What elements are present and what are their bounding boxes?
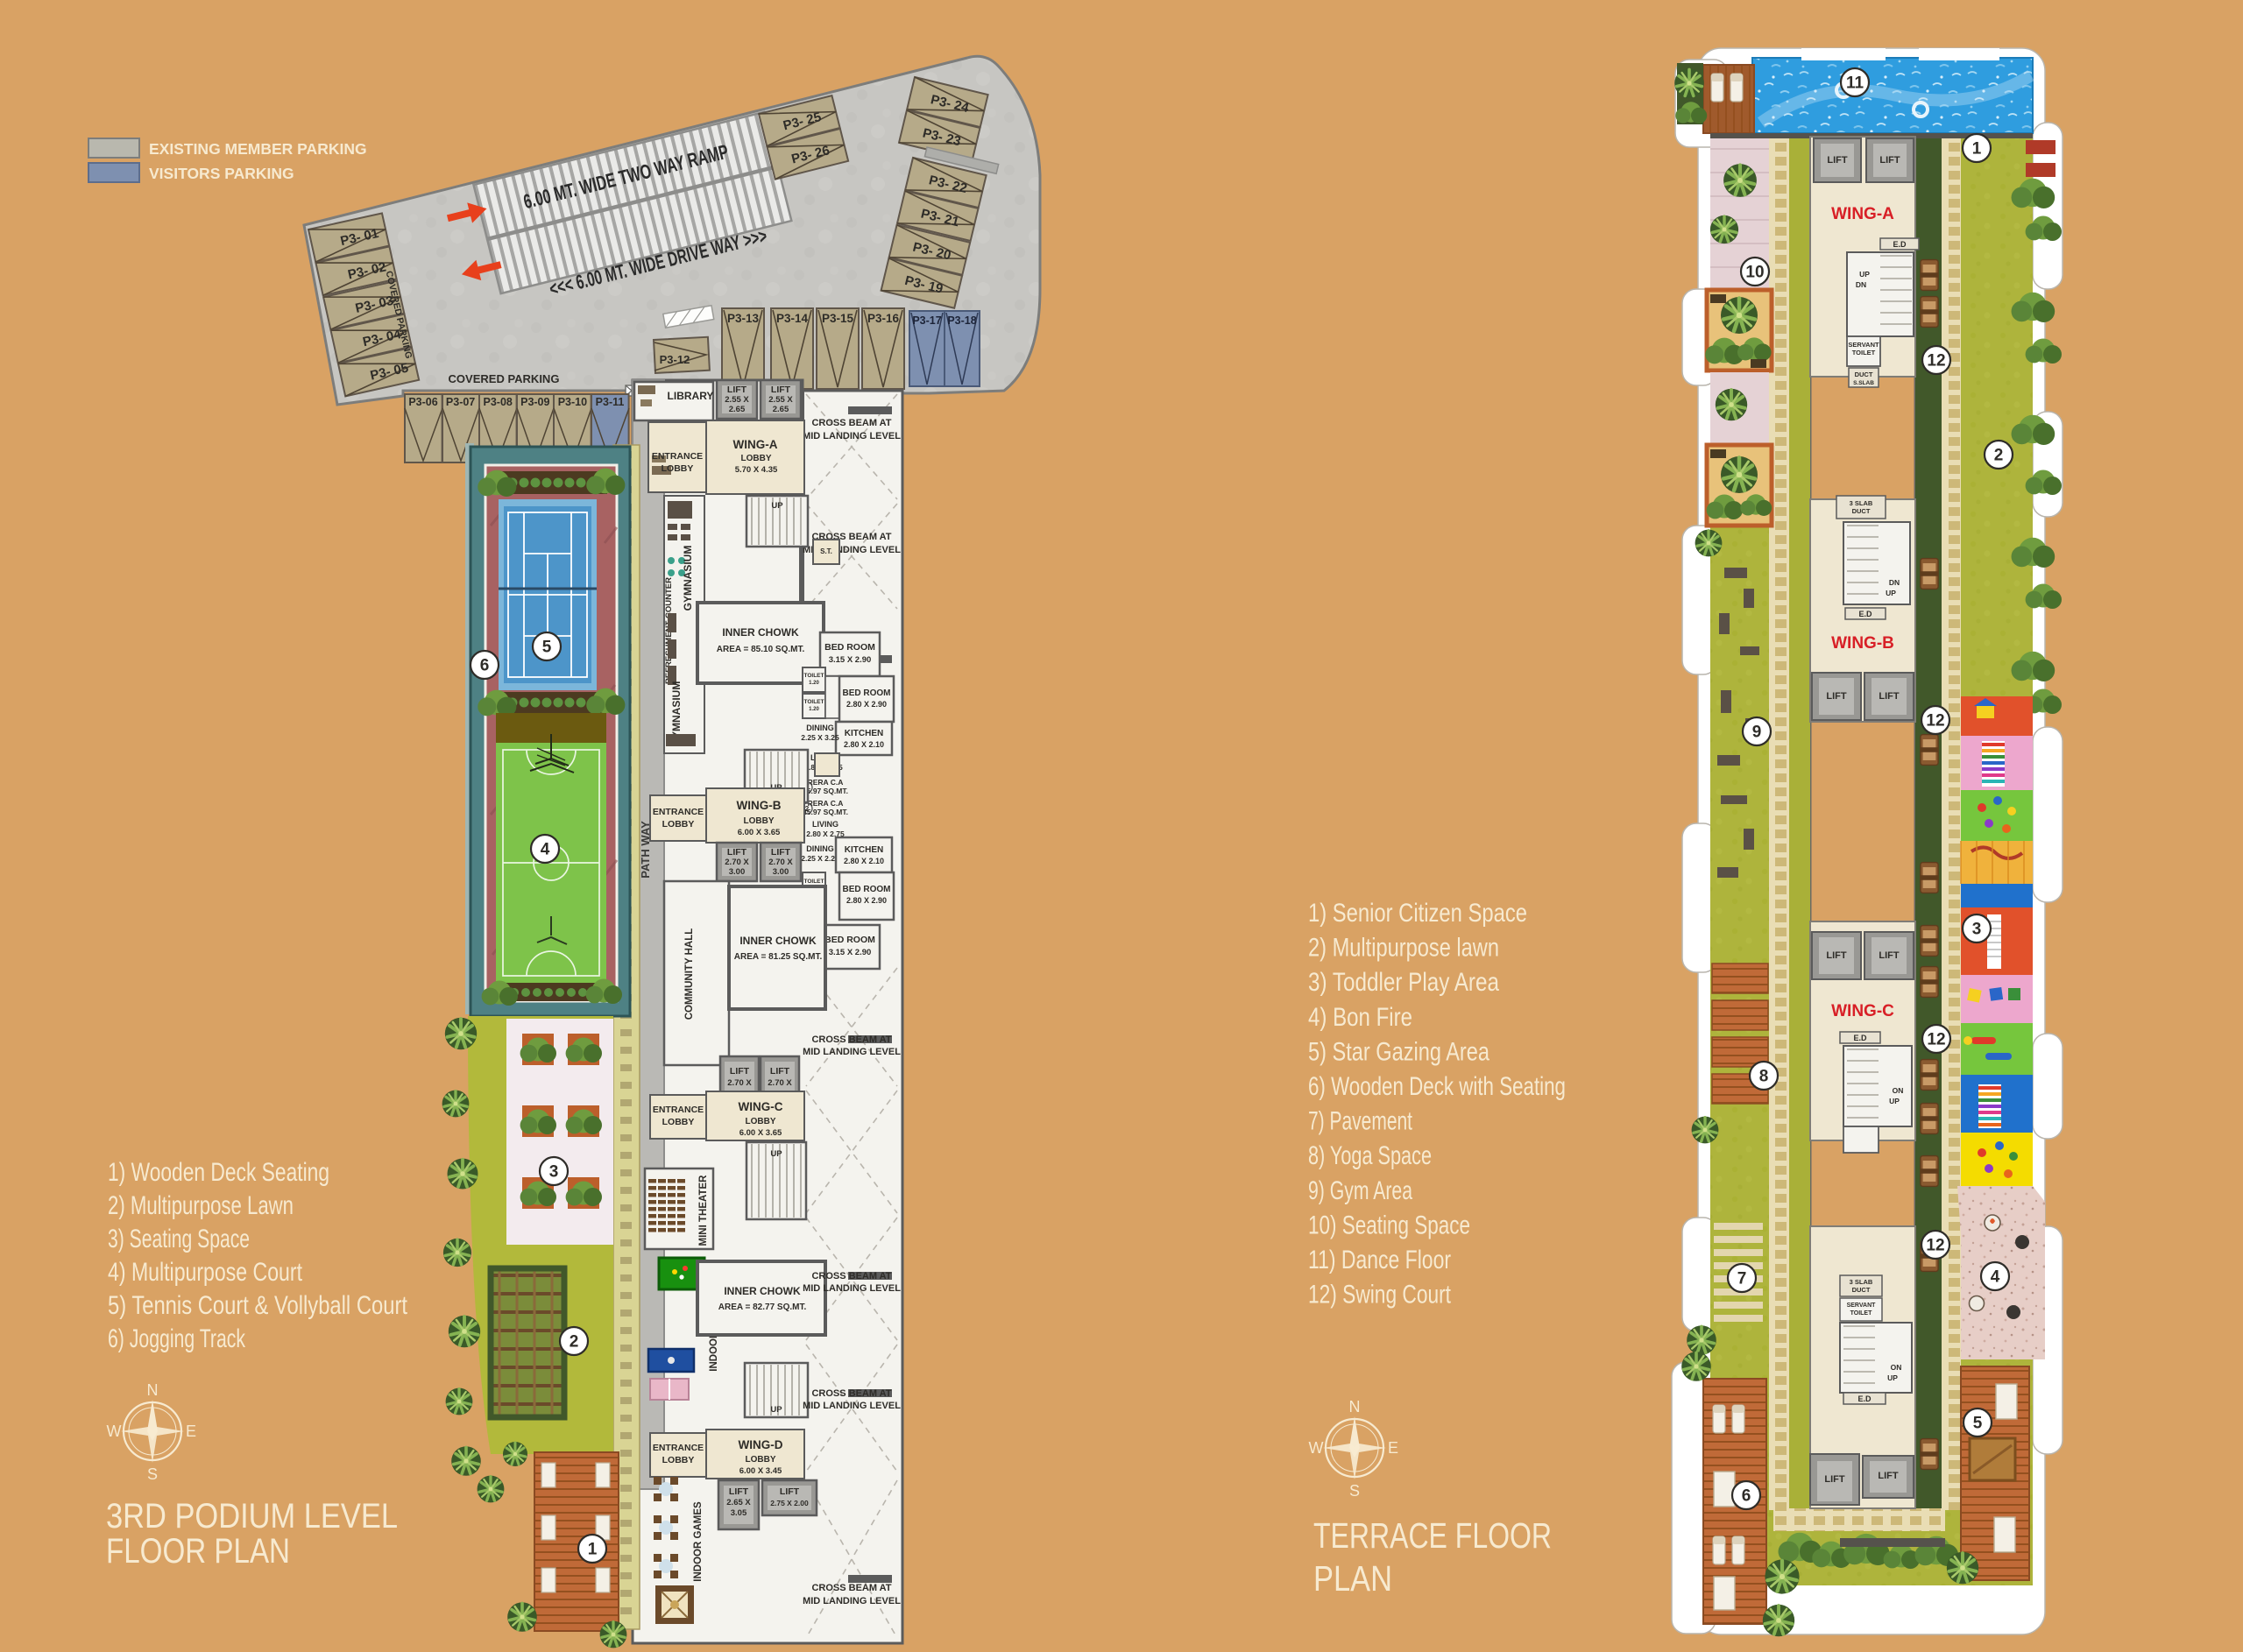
svg-text:DN: DN	[1856, 280, 1866, 289]
svg-text:2.55 X: 2.55 X	[725, 395, 749, 405]
svg-text:LIFT: LIFT	[1826, 950, 1846, 961]
svg-text:P3-08: P3-08	[484, 396, 513, 408]
svg-text:3 SLAB: 3 SLAB	[1850, 1278, 1873, 1286]
svg-text:2.55 X: 2.55 X	[768, 395, 793, 405]
svg-text:LOBBY: LOBBY	[662, 819, 695, 830]
svg-text:S: S	[1349, 1482, 1360, 1500]
svg-text:2.80 X 2.90: 2.80 X 2.90	[846, 896, 887, 905]
svg-text:E.D: E.D	[1857, 1394, 1872, 1403]
svg-text:6.00 X 3.65: 6.00 X 3.65	[738, 828, 781, 837]
svg-text:3) Toddler Play Area: 3) Toddler Play Area	[1308, 968, 1499, 997]
svg-text:BED ROOM: BED ROOM	[824, 642, 875, 653]
svg-text:LIBRARY: LIBRARY	[668, 390, 714, 402]
svg-text:LOBBY: LOBBY	[662, 1117, 695, 1127]
svg-text:1: 1	[1972, 140, 1982, 159]
svg-text:45.97 SQ.MT.: 45.97 SQ.MT.	[803, 808, 848, 816]
svg-text:EXISTING MEMBER PARKING: EXISTING MEMBER PARKING	[149, 140, 367, 158]
svg-text:3.00: 3.00	[729, 867, 746, 877]
svg-text:LIFT: LIFT	[727, 385, 747, 395]
svg-text:CROSS BEAM AT: CROSS BEAM AT	[811, 1388, 891, 1399]
svg-text:4) Multipurpose Court: 4) Multipurpose Court	[108, 1258, 303, 1287]
svg-text:MID LANDING LEVEL: MID LANDING LEVEL	[803, 431, 901, 441]
svg-text:MID LANDING LEVEL: MID LANDING LEVEL	[803, 1401, 901, 1411]
svg-text:2) Multipurpose lawn: 2) Multipurpose lawn	[1308, 934, 1499, 963]
svg-text:45.97 SQ.MT.: 45.97 SQ.MT.	[803, 787, 848, 795]
svg-text:DUCT: DUCT	[1852, 1286, 1871, 1294]
svg-text:LIFT: LIFT	[1878, 1471, 1898, 1481]
svg-text:N: N	[147, 1381, 159, 1399]
svg-text:4: 4	[1991, 1268, 2000, 1287]
svg-text:CROSS BEAM AT: CROSS BEAM AT	[811, 418, 891, 428]
svg-text:LIFT: LIFT	[1879, 155, 1900, 166]
svg-text:P3-12: P3-12	[660, 353, 690, 366]
svg-text:5: 5	[542, 639, 552, 657]
svg-text:6: 6	[1742, 1487, 1751, 1506]
svg-text:INNER CHOWK: INNER CHOWK	[724, 1285, 801, 1297]
svg-text:UP: UP	[770, 1405, 782, 1415]
svg-text:2) Multipurpose Lawn: 2) Multipurpose Lawn	[108, 1191, 294, 1220]
svg-text:10: 10	[1745, 264, 1764, 282]
svg-text:LIFT: LIFT	[771, 385, 791, 395]
svg-text:INNER CHOWK: INNER CHOWK	[722, 626, 799, 639]
svg-text:LOBBY: LOBBY	[741, 454, 772, 463]
svg-text:MID LANDING LEVEL: MID LANDING LEVEL	[803, 1596, 901, 1606]
svg-text:P3-09: P3-09	[520, 396, 549, 408]
svg-text:AREA = 82.77 SQ.MT.: AREA = 82.77 SQ.MT.	[718, 1303, 807, 1312]
svg-text:AREA = 85.10 SQ.MT.: AREA = 85.10 SQ.MT.	[717, 645, 805, 654]
svg-text:3.15 X 2.90: 3.15 X 2.90	[829, 948, 872, 957]
svg-text:2.65 X: 2.65 X	[726, 1498, 751, 1507]
svg-text:WING-B: WING-B	[737, 799, 782, 812]
svg-text:TOILET: TOILET	[804, 699, 824, 705]
svg-text:5.70 X 4.35: 5.70 X 4.35	[735, 465, 778, 475]
svg-text:E: E	[186, 1423, 196, 1440]
svg-text:LIFT: LIFT	[730, 1066, 750, 1077]
svg-text:P3-17: P3-17	[912, 314, 941, 327]
svg-text:S.T.: S.T.	[820, 547, 832, 555]
svg-text:6.00 X 3.45: 6.00 X 3.45	[739, 1466, 782, 1476]
svg-text:9: 9	[1752, 724, 1762, 742]
svg-text:1.20: 1.20	[809, 681, 819, 686]
svg-text:1) Wooden Deck Seating: 1) Wooden Deck Seating	[108, 1158, 329, 1187]
svg-text:3.00: 3.00	[773, 867, 789, 877]
svg-text:LIFT: LIFT	[780, 1486, 800, 1497]
svg-text:LOBBY: LOBBY	[744, 816, 775, 826]
svg-text:MID LANDING LEVEL: MID LANDING LEVEL	[803, 1283, 901, 1294]
svg-text:2: 2	[1994, 447, 2004, 465]
svg-text:E: E	[1388, 1439, 1398, 1457]
svg-text:6) Jogging Track: 6) Jogging Track	[108, 1324, 246, 1353]
svg-text:12) Swing Court: 12) Swing Court	[1308, 1281, 1451, 1310]
svg-text:TOILET: TOILET	[1852, 349, 1876, 357]
svg-text:W: W	[1309, 1439, 1324, 1457]
svg-text:2.80 X 2.10: 2.80 X 2.10	[844, 857, 884, 865]
svg-text:2.70 X: 2.70 X	[727, 1078, 752, 1088]
svg-text:P3-18: P3-18	[947, 314, 976, 327]
svg-text:CROSS BEAM AT: CROSS BEAM AT	[811, 1583, 891, 1593]
svg-text:KITCHEN: KITCHEN	[845, 729, 883, 738]
svg-text:KITCHEN: KITCHEN	[845, 845, 883, 855]
svg-text:W: W	[107, 1423, 122, 1440]
svg-text:P3-07: P3-07	[446, 396, 475, 408]
svg-text:GYMNASIUM: GYMNASIUM	[682, 546, 694, 611]
svg-text:S.SLAB: S.SLAB	[1853, 380, 1874, 386]
svg-text:COVERED PARKING: COVERED PARKING	[449, 372, 560, 385]
svg-text:1.20: 1.20	[809, 707, 819, 712]
svg-text:2.25 X 3.25: 2.25 X 3.25	[801, 733, 839, 742]
svg-text:1: 1	[588, 1541, 598, 1559]
svg-text:8) Yoga Space: 8) Yoga Space	[1308, 1141, 1432, 1170]
svg-text:LIFT: LIFT	[1879, 691, 1899, 702]
svg-text:ON: ON	[1891, 1363, 1902, 1372]
svg-text:UP: UP	[770, 1149, 782, 1159]
svg-text:ENTRANCE: ENTRANCE	[652, 451, 703, 462]
svg-text:UP: UP	[1889, 1097, 1900, 1105]
svg-text:WING-A: WING-A	[1831, 205, 1894, 223]
svg-text:3: 3	[549, 1163, 559, 1182]
svg-text:ENTRANCE: ENTRANCE	[653, 807, 704, 817]
svg-text:2.80 X 2.10: 2.80 X 2.10	[844, 740, 884, 749]
svg-text:11: 11	[1846, 74, 1864, 93]
svg-text:2.80 X 2.90: 2.80 X 2.90	[846, 700, 887, 709]
svg-text:BED ROOM: BED ROOM	[843, 885, 891, 894]
svg-text:WING-B: WING-B	[1831, 634, 1894, 653]
svg-text:N: N	[1349, 1398, 1361, 1415]
svg-text:4: 4	[541, 841, 550, 859]
svg-text:CROSS BEAM AT: CROSS BEAM AT	[811, 1034, 891, 1045]
svg-text:2: 2	[805, 805, 810, 813]
svg-text:2.65: 2.65	[773, 405, 789, 414]
svg-text:DINING: DINING	[806, 724, 834, 732]
svg-text:2.70 X: 2.70 X	[725, 858, 749, 867]
svg-text:UP: UP	[771, 501, 783, 511]
svg-text:LIFT: LIFT	[1879, 950, 1899, 961]
svg-text:ENTRANCE: ENTRANCE	[653, 1443, 704, 1453]
svg-text:DUCT: DUCT	[1852, 507, 1871, 515]
svg-text:5) Star Gazing Area: 5) Star Gazing Area	[1308, 1037, 1489, 1066]
svg-text:VISITORS PARKING: VISITORS PARKING	[149, 165, 294, 182]
svg-text:LIFT: LIFT	[727, 847, 747, 858]
svg-text:DINING: DINING	[806, 844, 834, 853]
svg-text:COMMUNITY HALL: COMMUNITY HALL	[684, 928, 695, 1020]
svg-text:LOBBY: LOBBY	[662, 463, 694, 474]
svg-text:P3-10: P3-10	[558, 396, 587, 408]
svg-text:WING-C: WING-C	[1831, 1002, 1894, 1020]
svg-text:LIFT: LIFT	[1824, 1474, 1844, 1485]
svg-text:LIFT: LIFT	[770, 1066, 790, 1077]
svg-text:P3-13: P3-13	[727, 312, 760, 325]
svg-text:P3-16: P3-16	[867, 312, 900, 325]
svg-text:FLOOR PLAN: FLOOR PLAN	[106, 1532, 290, 1571]
svg-text:TOILET: TOILET	[804, 879, 824, 885]
svg-text:6: 6	[480, 657, 490, 675]
svg-text:LIFT: LIFT	[1826, 691, 1846, 702]
svg-text:P3-15: P3-15	[822, 312, 854, 325]
svg-text:E.D: E.D	[1893, 240, 1907, 249]
svg-text:11) Dance Floor: 11) Dance Floor	[1308, 1246, 1451, 1274]
svg-text:SERVANT: SERVANT	[1847, 1303, 1877, 1309]
svg-text:LIFT: LIFT	[771, 847, 791, 858]
svg-text:3RD PODIUM LEVEL: 3RD PODIUM LEVEL	[106, 1497, 398, 1536]
svg-text:UP: UP	[1859, 270, 1870, 279]
svg-text:RERA C.A: RERA C.A	[808, 799, 844, 808]
svg-text:3 SLAB: 3 SLAB	[1850, 499, 1873, 507]
svg-text:7) Pavement: 7) Pavement	[1308, 1107, 1412, 1136]
svg-text:LIVING: LIVING	[812, 820, 838, 829]
svg-text:12: 12	[1926, 1237, 1944, 1255]
svg-text:6.00 X 3.65: 6.00 X 3.65	[739, 1128, 782, 1138]
svg-text:LOBBY: LOBBY	[746, 1455, 776, 1465]
svg-text:2.70 X: 2.70 X	[768, 858, 793, 867]
svg-text:2.70 X: 2.70 X	[768, 1078, 792, 1088]
svg-text:E.D: E.D	[1853, 1034, 1867, 1042]
svg-text:WING-C: WING-C	[739, 1100, 783, 1113]
svg-text:E.D: E.D	[1858, 610, 1872, 618]
svg-text:2.65: 2.65	[729, 405, 746, 414]
svg-text:CROSS BEAM AT: CROSS BEAM AT	[811, 1271, 891, 1281]
svg-text:4) Bon Fire: 4) Bon Fire	[1308, 1003, 1412, 1032]
svg-text:WING-D: WING-D	[739, 1438, 783, 1451]
svg-text:PLAN: PLAN	[1313, 1558, 1392, 1599]
svg-text:LOBBY: LOBBY	[746, 1117, 776, 1126]
svg-text:LIFT: LIFT	[729, 1486, 749, 1497]
svg-text:10) Seating Space: 10) Seating Space	[1308, 1211, 1470, 1239]
svg-text:TERRACE FLOOR: TERRACE FLOOR	[1313, 1515, 1552, 1556]
svg-text:3: 3	[1972, 921, 1982, 939]
svg-text:INNER CHOWK: INNER CHOWK	[739, 935, 817, 947]
svg-text:DUCT: DUCT	[1855, 371, 1873, 378]
svg-text:5: 5	[1973, 1415, 1983, 1433]
svg-text:LOBBY: LOBBY	[662, 1455, 695, 1465]
svg-text:12: 12	[1927, 1031, 1945, 1049]
svg-text:3.05: 3.05	[731, 1508, 747, 1518]
svg-text:UP: UP	[1886, 589, 1896, 597]
svg-text:TOILET: TOILET	[804, 673, 824, 679]
svg-text:S: S	[147, 1465, 158, 1483]
svg-text:3.15 X 2.90: 3.15 X 2.90	[829, 655, 872, 665]
svg-text:LIFT: LIFT	[1827, 155, 1847, 166]
svg-text:ON: ON	[1893, 1086, 1904, 1095]
svg-text:TOILET: TOILET	[1850, 1310, 1872, 1317]
svg-text:WING-A: WING-A	[733, 438, 778, 451]
svg-text:8: 8	[1759, 1068, 1769, 1086]
svg-text:RERA C.A: RERA C.A	[808, 778, 844, 787]
svg-text:P3-06: P3-06	[408, 396, 437, 408]
svg-text:BED ROOM: BED ROOM	[843, 688, 891, 698]
svg-text:7: 7	[1737, 1270, 1747, 1288]
svg-text:BED ROOM: BED ROOM	[824, 935, 875, 945]
svg-text:P3-11: P3-11	[596, 396, 625, 408]
svg-text:6) Wooden Deck with Seating: 6) Wooden Deck with Seating	[1308, 1072, 1566, 1101]
svg-text:3) Seating Space: 3) Seating Space	[108, 1225, 250, 1253]
svg-text:MID LANDING LEVEL: MID LANDING LEVEL	[803, 1047, 901, 1057]
svg-text:9) Gym Area: 9) Gym Area	[1308, 1176, 1412, 1205]
svg-text:UP: UP	[1887, 1373, 1898, 1382]
svg-text:SERVANT: SERVANT	[1848, 341, 1879, 349]
svg-text:2.25 X 2.25: 2.25 X 2.25	[801, 854, 839, 863]
svg-text:2.75 X 2.00: 2.75 X 2.00	[770, 1499, 809, 1507]
svg-text:P3-14: P3-14	[776, 312, 809, 325]
svg-text:2: 2	[570, 1333, 579, 1352]
svg-text:MINI THEATER: MINI THEATER	[698, 1175, 709, 1246]
svg-text:INDOOR GAMES: INDOOR GAMES	[693, 1501, 704, 1582]
svg-text:12: 12	[1926, 712, 1944, 731]
svg-text:AREA = 81.25 SQ.MT.: AREA = 81.25 SQ.MT.	[734, 952, 823, 962]
svg-text:5) Tennis Court & Vollyball Co: 5) Tennis Court & Vollyball Court	[108, 1291, 408, 1320]
svg-text:DN: DN	[1889, 578, 1900, 587]
svg-text:ENTRANCE: ENTRANCE	[653, 1105, 704, 1115]
svg-text:1) Senior Citizen Space: 1) Senior Citizen Space	[1308, 899, 1527, 928]
svg-text:12: 12	[1927, 352, 1945, 371]
